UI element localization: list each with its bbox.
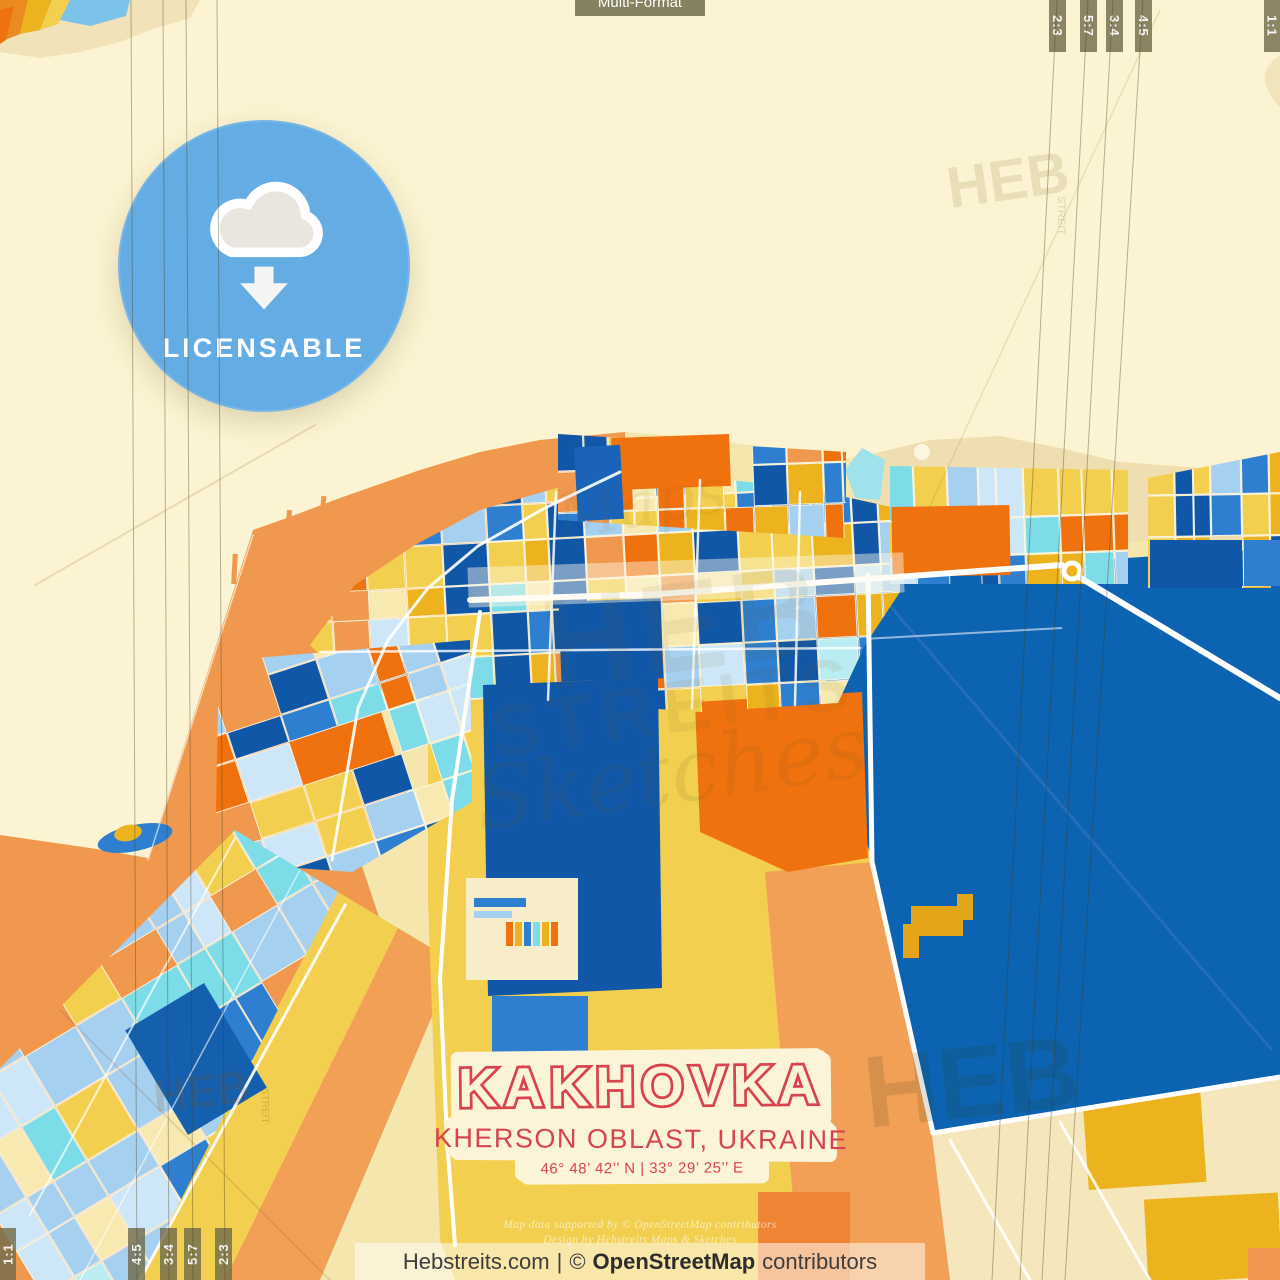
footer-separator: | — [557, 1249, 563, 1275]
footer-copyright: © — [569, 1249, 585, 1275]
watermark-streit-topright: STREIT — [1055, 196, 1067, 235]
watermark-heb-bottomleft: HEB — [151, 1060, 253, 1122]
footer-bar: Hebstreits.com | © OpenStreetMap contrib… — [355, 1243, 925, 1280]
cloud-download-icon — [189, 169, 339, 319]
coords-plate: 46° 48’ 42’’ N | 33° 29’ 25’’ E — [518, 1153, 766, 1182]
ratio-tab-5-7-top[interactable]: 5:7 — [1080, 0, 1097, 52]
footer-contributors: contributors — [762, 1249, 877, 1275]
ratio-tab-2-3-top[interactable]: 2:3 — [1049, 0, 1066, 52]
city-title: KAKHOVKA — [455, 1050, 828, 1126]
ratio-tab-3-4-top[interactable]: 3:4 — [1106, 0, 1123, 52]
credit-line-1: Map data supported by © OpenStreetMap co… — [0, 1219, 1280, 1231]
watermark-heb-bottomright: HEB — [858, 1014, 1084, 1150]
title-plate: KAKHOVKA — [455, 1050, 828, 1126]
region-text: KHERSON OBLAST, UKRAINE — [434, 1122, 848, 1155]
format-label: Multi-Format — [575, 0, 705, 16]
ratio-tab-4-5-top[interactable]: 4:5 — [1135, 0, 1152, 52]
licensable-badge: LICENSABLE — [118, 120, 410, 412]
footer-site: Hebstreits.com — [403, 1249, 550, 1275]
product-preview: Maps HEB STREITS Sketches HEB STREIT HEB… — [0, 0, 1280, 1280]
footer-osm: OpenStreetMap — [593, 1249, 756, 1275]
city-title-text: KAKHOVKA — [458, 1053, 824, 1119]
format-label-text: Multi-Format — [598, 0, 682, 11]
watermark-streit-bottomleft: STREIT — [259, 1088, 270, 1124]
ratio-tab-1-1-top[interactable]: 1:1 — [1264, 0, 1280, 52]
coords-text: 46° 48’ 42’’ N | 33° 29’ 25’’ E — [541, 1159, 744, 1177]
licensable-label: LICENSABLE — [163, 333, 366, 364]
